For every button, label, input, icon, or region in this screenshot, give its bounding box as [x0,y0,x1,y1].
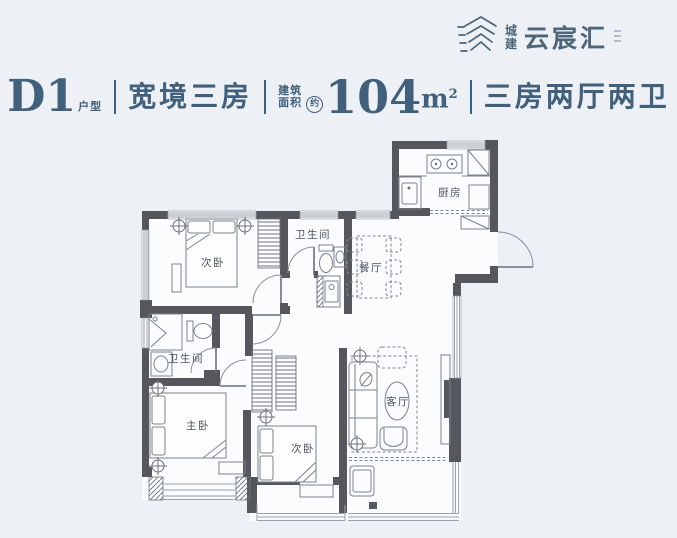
tv [444,380,449,418]
window-dining-top [356,211,390,219]
toilet-tank [187,321,193,341]
entry-door [498,232,533,267]
window-bath-top [300,211,338,219]
poster: 城 建 云宸汇 D1 户型 宽境三房 建筑 面积 约 104 m2 三房两厅两卫 [0,0,677,538]
window-bath-left [142,318,149,348]
window-bedroom-top [168,211,256,219]
floor-drain [369,502,377,509]
wardrobe [252,350,272,412]
window-living-right [453,296,461,378]
sofa [349,362,377,448]
wardrobe [258,219,280,268]
pillow [152,427,165,455]
room-label-master: 主卧 [186,419,210,432]
pillow [188,221,210,233]
pillow [260,456,273,480]
pillow [260,429,273,453]
window-bedroom-top-left [142,230,149,300]
toilet-tank [319,245,333,251]
room-label-dining: 餐厅 [359,261,383,274]
toilet-bowl [320,254,333,273]
wardrobe [276,356,296,410]
room-label-bedroom-top: 次卧 [201,256,225,269]
floorplan: 次卧 卫生间 [0,0,677,538]
pillow [152,396,165,424]
toilet-bowl [194,324,212,339]
room-label-bath-top: 卫生间 [295,228,331,241]
room-label-living: 客厅 [386,395,410,408]
room-label-bedroom-bottom: 次卧 [291,442,315,455]
room-label-bath-left: 卫生间 [168,352,204,365]
room-label-kitchen: 厨房 [438,186,462,199]
pillow [213,221,235,233]
window-kitchen-top [447,141,485,149]
